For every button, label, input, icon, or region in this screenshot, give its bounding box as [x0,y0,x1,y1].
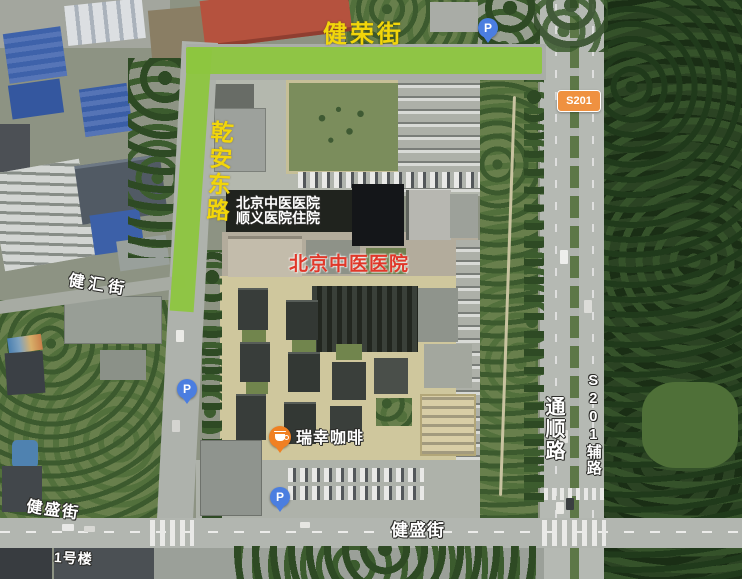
courtyard-garden [376,398,412,426]
parked-cars-row [288,486,424,500]
parking-icon: P [478,18,498,38]
qianan-east-road-label: 乾安东路 [203,119,233,224]
car [176,330,184,342]
crosswalk [544,488,606,500]
route-highlight-horizontal [186,47,542,74]
hospital-inpatient-line2: 顺义医院住院 [236,211,320,226]
crosswalk [542,520,606,546]
parking-icon: P [177,379,197,399]
gray-building-cluster [64,296,162,344]
courtyard [336,344,362,360]
car [300,522,310,528]
parking-icon: P [270,487,290,507]
pool [12,440,38,468]
hospital-inpatient-line1: 北京中医医院 [236,196,320,211]
blue-roof-building [8,79,64,120]
building [424,344,472,388]
gray-building [430,2,478,32]
car [566,498,574,510]
hospital-main-label[interactable]: 北京中医医院 [289,255,409,275]
street-tree-row [230,546,540,579]
courtyard [292,340,316,352]
building [100,350,146,380]
hospital-wing [374,358,408,394]
jiansheng-street-label-center: 健盛街 [391,522,445,540]
building [450,194,478,238]
dark-shed [0,124,30,172]
pin-tail [182,397,192,409]
hospital-wing [240,342,270,382]
coffee-cup-icon [269,426,291,448]
car [584,300,592,313]
building-roof [214,84,254,110]
lawn-garden [286,80,402,174]
forest [604,0,742,579]
pin-tail [275,505,285,517]
hospital-main-roof [312,286,418,352]
s201-frontage-road-label: S201辅路 [585,372,601,476]
s201-route-shield: S201 [557,90,601,112]
hospital-wing [286,300,318,340]
car [62,524,74,531]
crosswalk [150,520,194,546]
hospital-wing [288,352,320,392]
dark-tower [352,184,404,246]
car [172,420,180,432]
parking-pin[interactable]: P [269,487,291,517]
luckin-coffee-label[interactable]: 瑞幸咖啡 [296,431,364,448]
jianrong-street-label: 健荣街 [323,22,404,47]
roadside-trees [524,52,544,502]
blue-roof-building [3,26,67,84]
building [418,288,458,342]
residential-slab [5,351,46,396]
satellite-map[interactable]: P P P 瑞幸咖啡 健荣街 乾安东路 健汇街 健盛街 健盛街 通顺路 S201… [0,0,742,579]
courtyard [242,330,266,342]
hospital-wing [236,394,266,440]
tongshun-road-label: 通顺路 [542,396,563,462]
parking-pin[interactable]: P [176,379,198,409]
pin-tail [483,36,493,48]
luckin-coffee-pin[interactable] [269,426,291,458]
road-median [570,548,579,579]
hospital-wing [238,288,268,330]
hospital-inpatient-label[interactable]: 北京中医医院 顺义医院住院 [236,196,320,225]
building-no1-label: 1号楼 [54,550,94,567]
white-sheds [64,0,146,46]
parked-cars-row [288,468,424,482]
road-median [570,0,579,518]
center-line [0,531,742,533]
building [200,440,262,516]
jiansheng-road-surface [0,518,742,548]
hospital-wing [332,362,366,400]
courtyard [246,382,268,394]
pin-tail [275,446,285,458]
forest-clearing [642,382,738,468]
building [0,548,52,579]
car [84,526,95,532]
blue-roof-building [79,83,133,137]
parking-pin[interactable]: P [477,18,499,48]
car [556,502,564,514]
car [560,250,568,264]
building [406,190,451,240]
tan-building [420,394,476,456]
